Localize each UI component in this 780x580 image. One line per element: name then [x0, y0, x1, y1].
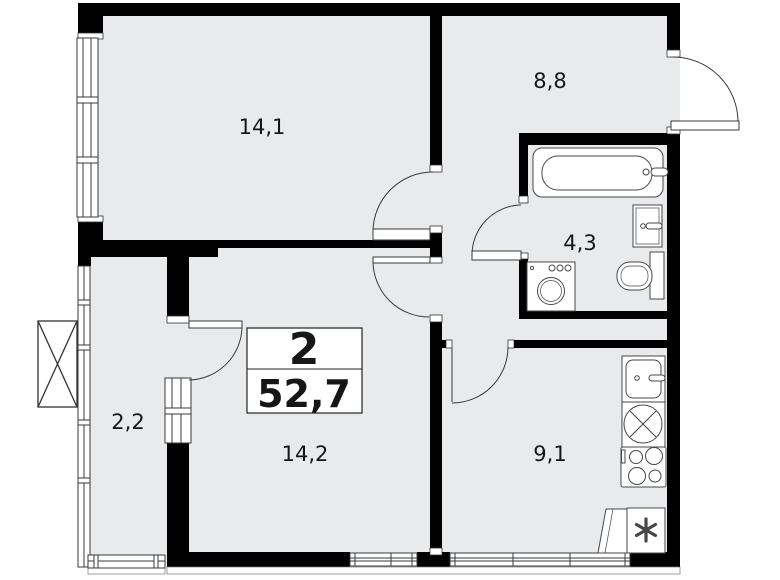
- window-living-room: [350, 553, 417, 566]
- balcony-ledge: [88, 568, 165, 574]
- kitchen-area-label: 9,1: [533, 442, 566, 466]
- jamb-cap: [508, 340, 514, 348]
- jamb-cap: [430, 548, 442, 555]
- wall-kitchen-separator: [430, 317, 442, 556]
- wall-mid-thin: [218, 240, 430, 248]
- jamb-cap: [446, 340, 452, 348]
- exterior-ledge: [167, 567, 680, 574]
- wall-mid-thick: [78, 240, 218, 257]
- wall-bathroom-left-upper: [519, 143, 528, 203]
- jamb-cap: [167, 316, 189, 323]
- wall-bathroom-top: [519, 133, 680, 145]
- wall-bottom-c: [630, 552, 680, 567]
- wall-kitchen-top: [513, 340, 667, 348]
- wall-right-lower: [667, 127, 680, 570]
- jamb-cap: [667, 50, 680, 57]
- window-room-14-1: [77, 38, 98, 217]
- balcony-glazing-bottom: [88, 555, 165, 568]
- jamb-cap: [430, 257, 442, 263]
- wall-balcony-partition-lower: [167, 443, 189, 553]
- floor-plan-drawing: 14,1 8,8 4,3 2,2 14,2 9,1 2 52,7: [0, 0, 780, 580]
- jamb-cap: [430, 315, 442, 322]
- door-leaf: [373, 257, 430, 263]
- neighbor-balcony-hatch: [38, 321, 77, 407]
- kitchen-sink-icon: [622, 356, 665, 402]
- wall-balcony-partition-upper: [167, 240, 189, 323]
- washing-machine-icon: [527, 262, 575, 311]
- room-count-value: 2: [289, 324, 320, 375]
- washbasin-icon: [633, 205, 662, 247]
- jamb-cap: [519, 196, 528, 203]
- hob-icon: [622, 402, 665, 447]
- floor-plan: 14,1 8,8 4,3 2,2 14,2 9,1 2 52,7: [0, 0, 780, 580]
- bathtub-icon: [533, 148, 668, 197]
- wall-bottom-a: [167, 552, 350, 567]
- corridor-floor: [436, 133, 528, 348]
- room-14-1-area-label: 14,1: [239, 115, 286, 139]
- window-kitchen: [450, 553, 630, 566]
- summary-box: 2 52,7: [247, 324, 362, 416]
- wall-balcony-stub: [78, 255, 91, 266]
- living-room-area-label: 14,2: [282, 442, 329, 466]
- door-leaf: [472, 251, 521, 260]
- stove-icon: [621, 447, 666, 487]
- wall-center-jamb: [430, 232, 442, 258]
- total-area-value: 52,7: [257, 372, 351, 416]
- jamb-cap: [430, 226, 442, 233]
- wall-bathroom-bottom: [519, 311, 667, 319]
- bathroom-area-label: 4,3: [563, 231, 596, 255]
- balcony-area-label: 2,2: [111, 410, 144, 434]
- balcony-glazing-left: [78, 266, 90, 567]
- wall-top: [78, 3, 680, 16]
- balcony-block-window: [165, 378, 191, 443]
- door-leaf: [189, 321, 242, 328]
- wall-right-upper: [667, 3, 680, 57]
- hallway-area-label: 8,8: [533, 69, 566, 93]
- door-leaf: [373, 229, 430, 240]
- refrigerator-icon: [627, 508, 665, 553]
- wall-center-vertical: [430, 3, 442, 172]
- jamb-cap: [430, 165, 442, 172]
- door-leaf: [671, 121, 739, 130]
